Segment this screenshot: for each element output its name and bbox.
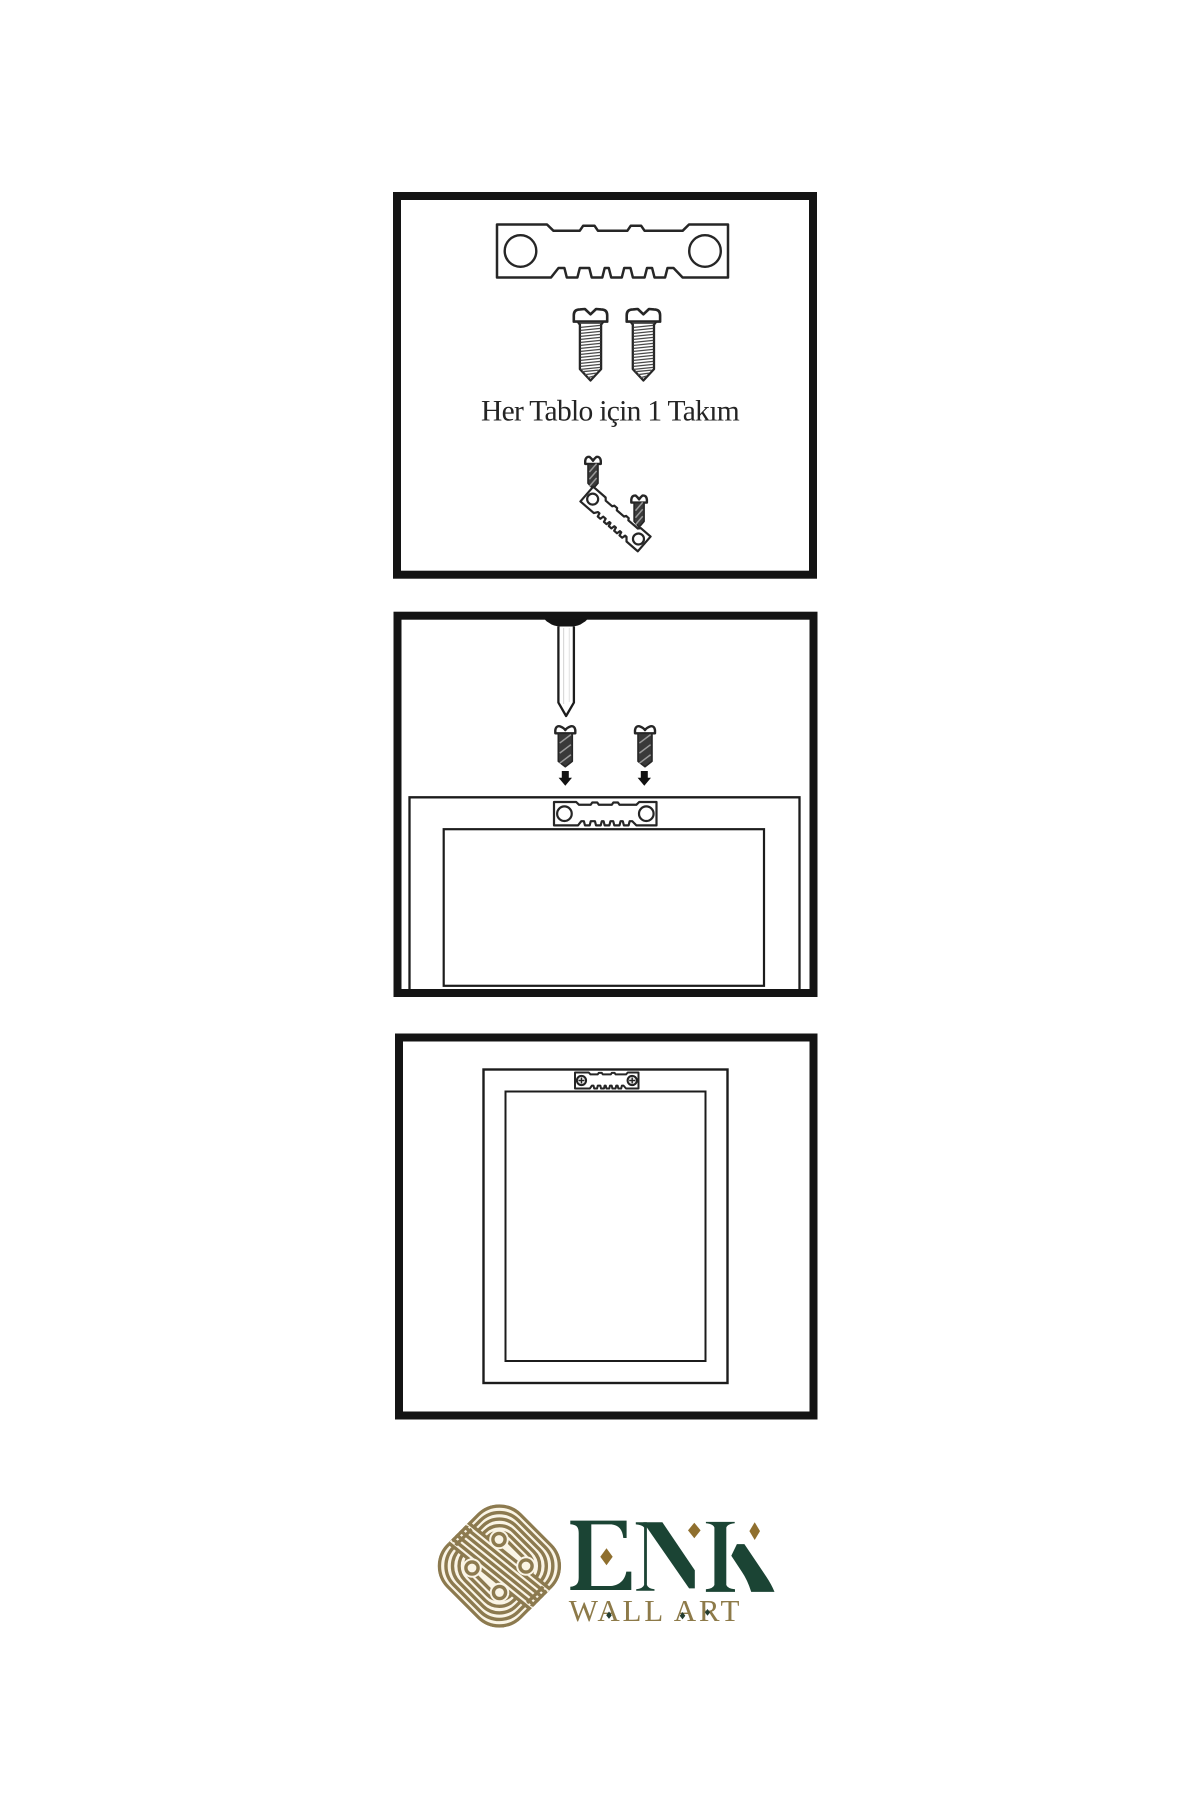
svg-text:Her Tablo için 1 Takım: Her Tablo için 1 Takım bbox=[481, 396, 740, 428]
svg-text:WALL ART: WALL ART bbox=[569, 1593, 743, 1628]
